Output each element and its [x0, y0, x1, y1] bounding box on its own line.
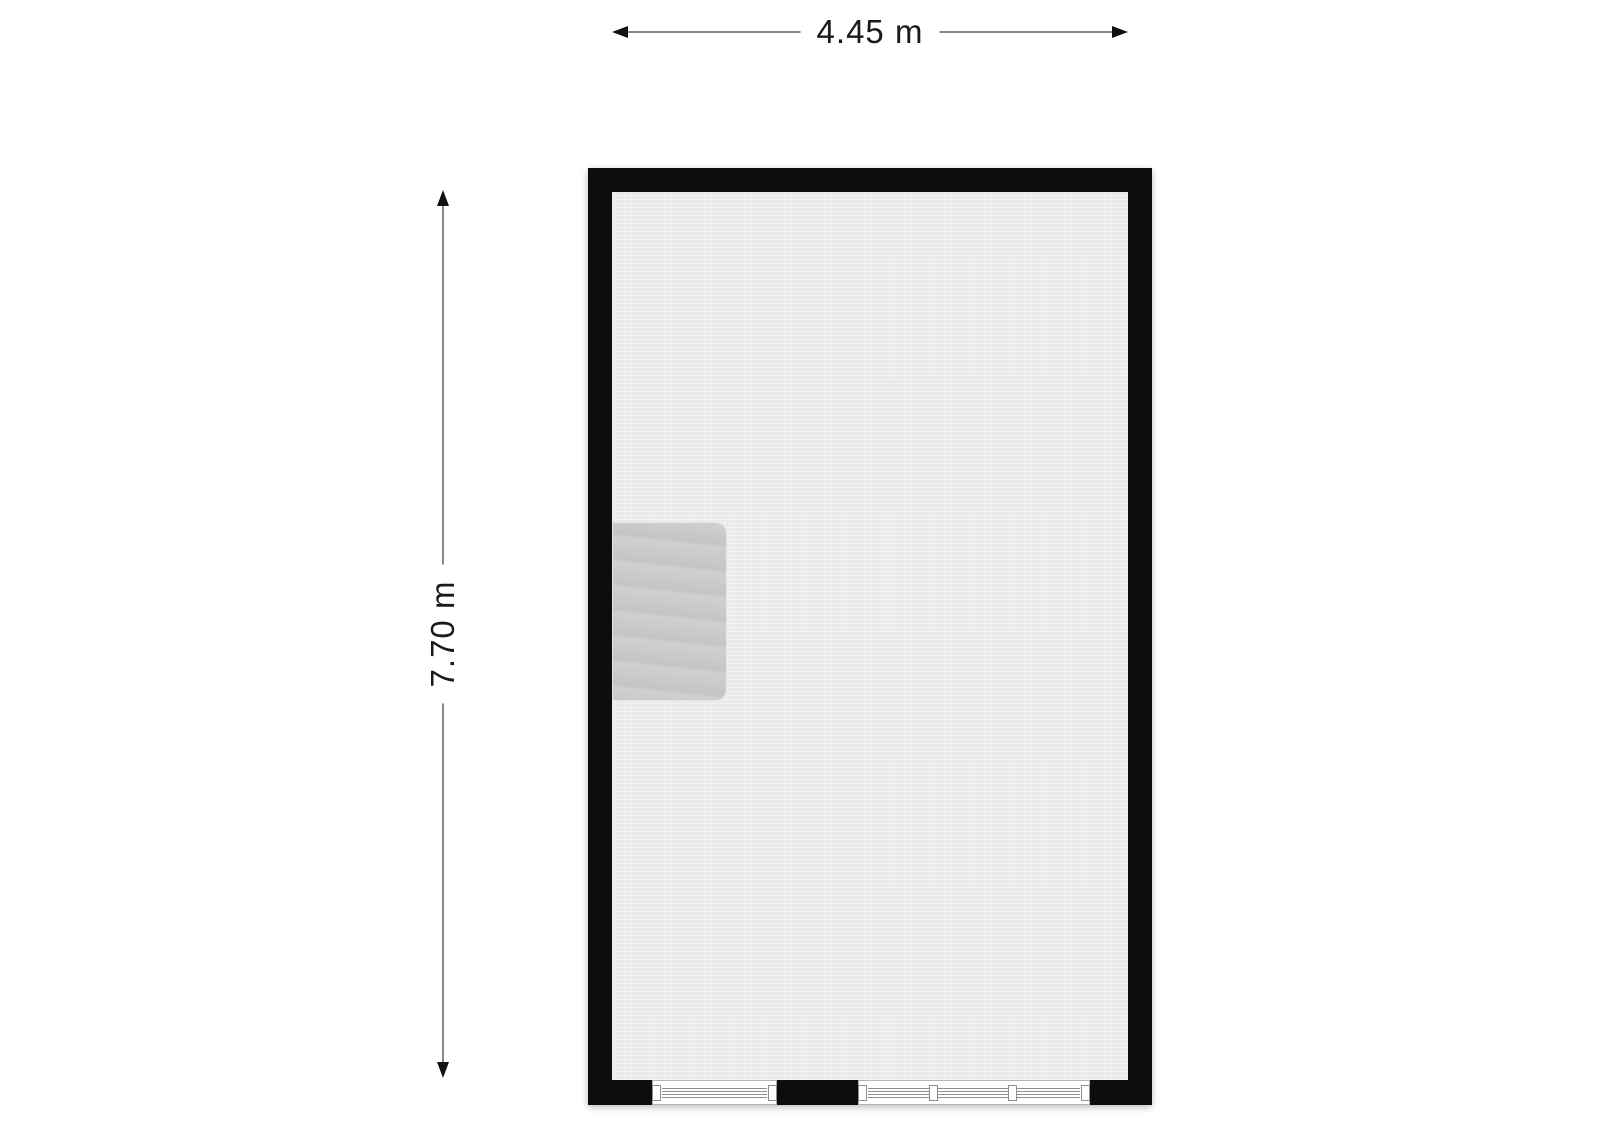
window-jamb [768, 1085, 777, 1101]
floorplan-canvas: 4.45 m 7.70 m [0, 0, 1600, 1131]
window-mullion [1008, 1085, 1017, 1101]
height-dimension-label: 7.70 m [424, 565, 462, 704]
arrow-down-icon [437, 1062, 449, 1078]
window-jamb [858, 1085, 867, 1101]
window-mullion [929, 1085, 938, 1101]
room-floor [612, 192, 1128, 1080]
arrow-left-icon [612, 26, 628, 38]
window-jamb [652, 1085, 661, 1101]
window-glass [868, 1088, 1080, 1098]
width-dimension-label: 4.45 m [801, 13, 940, 51]
window-single [652, 1080, 777, 1105]
arrow-up-icon [437, 190, 449, 206]
staircase [613, 523, 726, 700]
window-jamb [1081, 1085, 1090, 1101]
width-dimension: 4.45 m [612, 12, 1128, 52]
window-triple [858, 1080, 1090, 1105]
arrow-right-icon [1112, 26, 1128, 38]
room-walls [588, 168, 1152, 1105]
window-glass [662, 1088, 767, 1098]
height-dimension: 7.70 m [425, 190, 461, 1078]
